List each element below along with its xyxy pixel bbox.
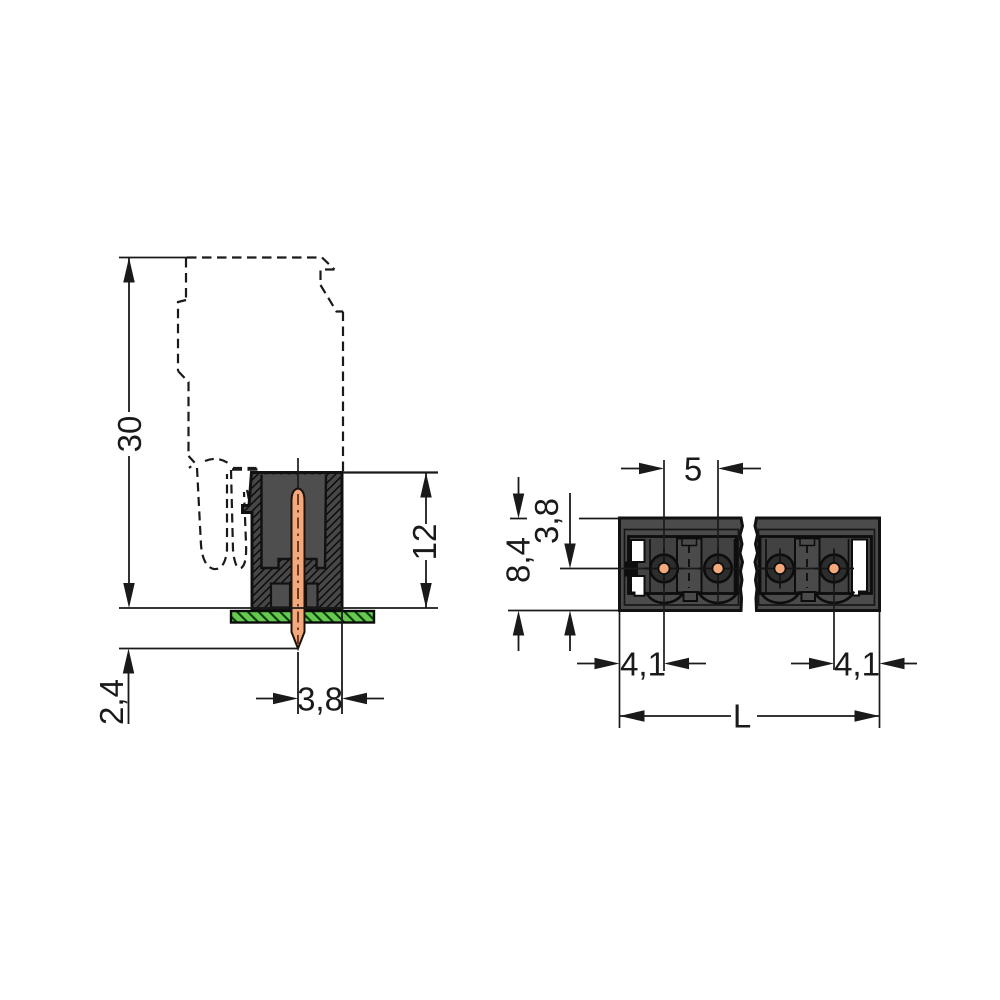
svg-text:5: 5 (684, 451, 702, 488)
svg-text:30: 30 (111, 416, 148, 453)
svg-text:4,1: 4,1 (620, 646, 666, 683)
svg-text:3,8: 3,8 (528, 498, 565, 544)
svg-text:2,4: 2,4 (93, 679, 130, 725)
svg-text:L: L (733, 698, 751, 735)
svg-text:4,1: 4,1 (834, 646, 880, 683)
svg-text:12: 12 (406, 524, 443, 561)
svg-text:3,8: 3,8 (297, 681, 343, 718)
svg-text:8,4: 8,4 (500, 537, 537, 583)
